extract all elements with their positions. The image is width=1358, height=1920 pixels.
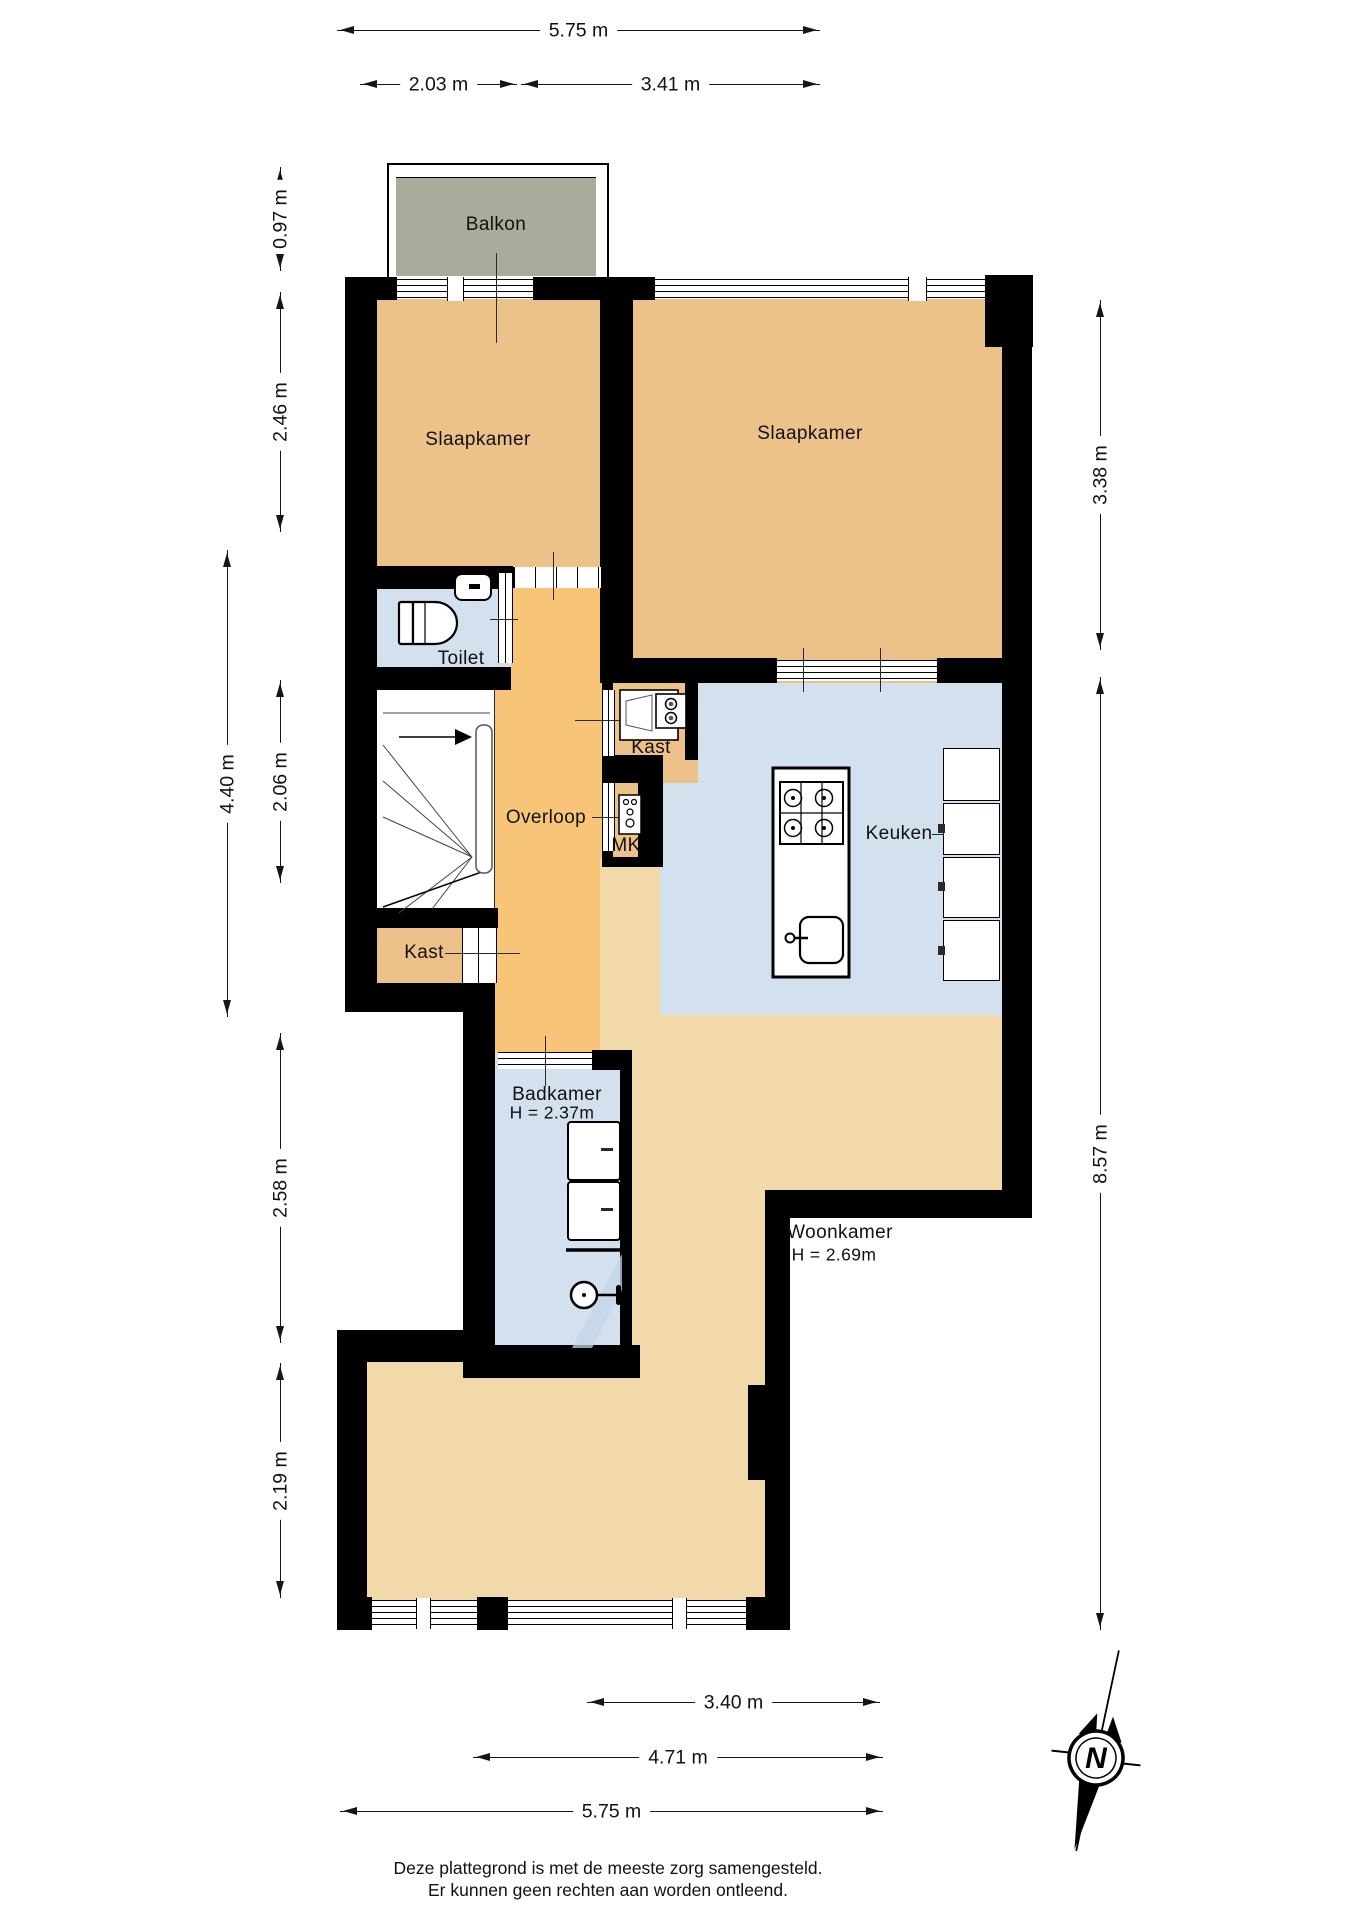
door-bedroom-left [513, 567, 602, 588]
wall-top-mid [533, 277, 655, 300]
dim-bottom-total-label: 5.75 m [573, 1801, 651, 1824]
dim-top-total: 5.75 m [337, 30, 820, 31]
window-mullion-2 [908, 277, 927, 301]
dim-left-bath: 2.58 m [280, 1033, 281, 1343]
dim-left-balcony: 0.97 m [280, 167, 281, 271]
window-bedroom-kitchen [777, 660, 937, 681]
stairs [377, 685, 500, 915]
door-kast-boiler [602, 690, 615, 756]
label-woonkamer: Woonkamer [787, 1222, 893, 1244]
tick-kast-stairs-door [445, 953, 520, 954]
window-bottom-right [508, 1600, 746, 1627]
wall-badkamer-left [463, 1012, 495, 1378]
dim-bottom-inner-label: 3.40 m [695, 1692, 773, 1715]
dim-bottom-middle: 4.71 m [473, 1757, 883, 1758]
counter-handle-3 [938, 946, 945, 955]
tick-kitchen-window-1 [803, 648, 804, 692]
dim-left-outer-label: 4.40 m [217, 745, 240, 823]
label-balkon: Balkon [466, 214, 527, 236]
window-mullion-3 [416, 1598, 431, 1629]
label-woonkamer-height: H = 2.69m [792, 1245, 877, 1266]
window-bedroom-right-top [655, 279, 985, 299]
dim-right-bedroom: 3.38 m [1100, 300, 1101, 650]
wall-bedroom-right-bottom-l [633, 658, 777, 683]
label-kast-boiler: Kast [631, 737, 671, 759]
dim-bottom-middle-label: 4.71 m [639, 1747, 717, 1770]
dim-left-bedroom: 2.46 m [280, 292, 281, 532]
dim-left-middle: 2.06 m [280, 680, 281, 883]
tick-balcony-door [496, 253, 497, 343]
room-slaapkamer-right-fill [633, 296, 1002, 683]
dim-left-middle-label: 2.06 m [270, 743, 293, 821]
label-mk: MK [611, 835, 640, 857]
kitchen-island [770, 765, 852, 980]
washer-2 [567, 1181, 621, 1241]
counter-2 [943, 803, 1000, 855]
door-kast-stairs [462, 928, 497, 983]
room-woonkamer-fill-b [632, 1190, 765, 1345]
wall-mk-bottom [602, 857, 663, 867]
label-slaapkamer-right: Slaapkamer [757, 423, 862, 445]
label-slaapkamer-left: Slaapkamer [425, 429, 530, 451]
window-bedroom-left-top [397, 279, 533, 299]
tick-bedroom-left-door [553, 552, 554, 600]
wall-bedroom-right-bottom-r [937, 658, 1032, 683]
floorplan-canvas: Balkon Slaapkamer Slaapkamer Toilet Over… [0, 0, 1358, 1920]
compass-north-icon: N [1018, 1640, 1178, 1865]
shower [560, 1240, 635, 1355]
dim-right-total-label: 8.57 m [1090, 1115, 1113, 1193]
footer-disclaimer-line2: Er kunnen geen rechten aan worden ontlee… [228, 1880, 988, 1901]
boiler-icon [616, 685, 692, 745]
label-kast-stairs: Kast [404, 942, 444, 964]
wall-right-chimney-block [748, 1385, 790, 1480]
wall-bottom-corner-left [337, 1597, 372, 1630]
dim-top-right: 3.41 m [521, 84, 820, 85]
dim-right-total: 8.57 m [1100, 677, 1101, 1630]
wall-bottom-pier [477, 1597, 508, 1630]
dim-top-right-label: 3.41 m [632, 74, 710, 97]
label-badkamer-height: H = 2.37m [510, 1103, 595, 1124]
meter-icon [615, 792, 645, 837]
window-mullion-1 [447, 277, 464, 301]
wall-kast-boiler-bottom [602, 755, 663, 783]
dim-top-total-label: 5.75 m [540, 20, 618, 43]
dim-right-bedroom-label: 3.38 m [1090, 436, 1113, 514]
wall-kast-stairs-bottom [345, 983, 495, 1012]
wall-left-upper [345, 277, 377, 1012]
wall-right-upper [1002, 300, 1032, 1190]
dim-left-bedroom-label: 2.46 m [270, 373, 293, 451]
washer-handle-1 [601, 1148, 613, 1151]
door-toilet [498, 573, 513, 663]
dim-bottom-inner: 3.40 m [587, 1702, 880, 1703]
counter-handle-1 [938, 824, 945, 833]
dim-left-outer: 4.40 m [227, 550, 228, 1017]
dim-left-bottom-label: 2.19 m [270, 1442, 293, 1520]
tick-badkamer-door [545, 1036, 546, 1086]
dim-top-left: 2.03 m [360, 84, 517, 85]
dim-bottom-total: 5.75 m [340, 1811, 883, 1812]
counter-1 [943, 748, 1000, 801]
counter-handle-2 [938, 882, 945, 891]
footer-disclaimer-line1: Deze plattegrond is met de meeste zorg s… [228, 1858, 988, 1879]
label-toilet: Toilet [438, 648, 485, 670]
dim-left-bath-label: 2.58 m [270, 1149, 293, 1227]
tick-kitchen-window-2 [880, 648, 881, 692]
dim-left-balcony-label: 0.97 m [270, 180, 293, 258]
label-keuken: Keuken [866, 823, 933, 845]
compass-north-label: N [1085, 1742, 1108, 1775]
washer-1 [567, 1121, 621, 1181]
toilet-fixtures [395, 570, 495, 650]
window-mullion-4 [672, 1598, 687, 1629]
counter-3 [943, 857, 1000, 918]
dim-top-left-label: 2.03 m [400, 74, 478, 97]
wall-hall-closet-upper [602, 566, 613, 690]
counter-4 [943, 920, 1000, 981]
wall-left-lower [337, 1330, 367, 1630]
washer-handle-2 [601, 1208, 613, 1211]
wall-right-jog [765, 1190, 1032, 1218]
label-overloop: Overloop [506, 807, 586, 829]
dim-left-bottom: 2.19 m [280, 1363, 281, 1598]
